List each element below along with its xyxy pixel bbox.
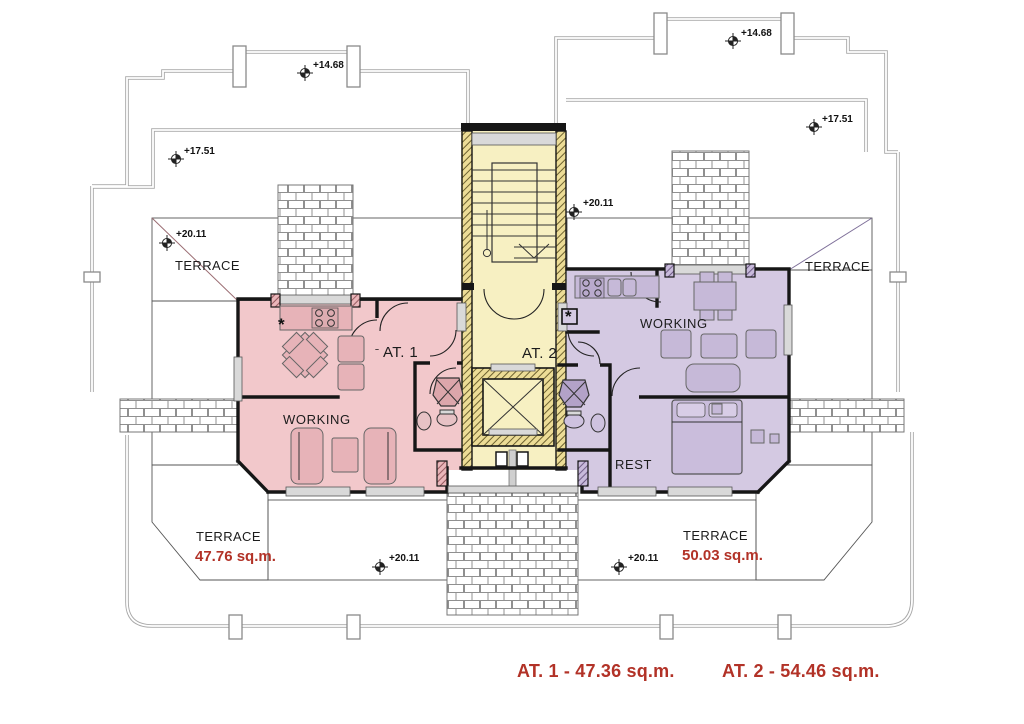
terrace-label-bottom-left: TERRACE [196,529,261,544]
svg-text:+14.68: +14.68 [741,28,772,39]
elevator [472,364,554,446]
terrace-area-1: 47.76 sq.m. [195,548,276,565]
svg-text:+14.68: +14.68 [313,60,344,71]
terrace-label-bottom-right: TERRACE [683,528,748,543]
legend-at2: AT. 2 - 54.46 sq.m. [722,661,880,681]
svg-text:+17.51: +17.51 [822,114,853,125]
floor-plan: * [0,0,1024,724]
kitchen-star-1: * [278,315,285,334]
elevation-marker: +20.11 [372,553,420,575]
svg-text:+17.51: +17.51 [184,146,215,157]
room-label-working-2: WORKING [640,316,708,331]
svg-text:+20.11: +20.11 [176,229,207,240]
room-label-working-1: WORKING [283,412,351,427]
legend-at1: AT. 1 - 47.36 sq.m. [517,661,675,681]
elevation-marker: +20.11 [611,553,659,575]
floor-plan-drawing: * [0,0,1024,724]
elevation-marker: +17.51 [168,146,215,167]
room-label-rest-2: REST [615,457,652,472]
area-legend: AT. 1 - 47.36 sq.m. AT. 2 - 54.46 sq.m. [517,661,880,681]
apartment-label-2: AT. 2 [522,345,557,362]
elevation-marker: +20.11 [566,198,614,220]
svg-text:+20.11: +20.11 [628,553,659,564]
terrace-area-2: 50.03 sq.m. [682,547,763,564]
terrace-label-top-left: TERRACE [175,258,240,273]
elevation-marker: +17.51 [806,114,853,135]
elevation-marker: +14.68 [297,60,344,81]
apartment-label-1: AT. 1 [383,344,418,361]
svg-text:+20.11: +20.11 [389,553,420,564]
svg-text:+20.11: +20.11 [583,198,614,209]
elevation-marker: +14.68 [725,28,772,49]
terrace-label-top-right: TERRACE [805,259,870,274]
kitchen-star-2: * [565,307,572,326]
